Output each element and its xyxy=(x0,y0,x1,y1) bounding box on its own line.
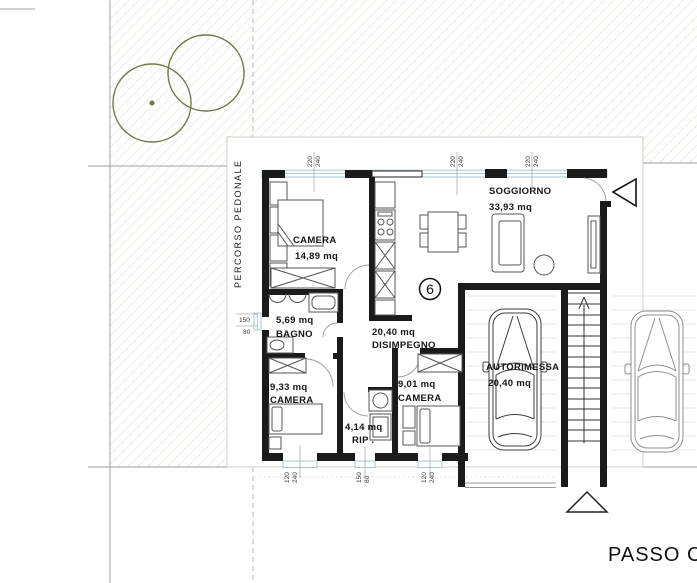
dim-top-2-h: 240 xyxy=(458,156,465,167)
wall-right-outer xyxy=(600,207,607,487)
room-area-camera2: 9,33 mq xyxy=(270,382,307,393)
wall-top-4 xyxy=(567,169,607,178)
dim-top-2-w: 220 xyxy=(450,156,457,167)
wall-bottom-3 xyxy=(375,453,418,461)
dim-top-3-w: 220 xyxy=(525,156,532,167)
hatch-top-strip xyxy=(110,0,643,138)
driveway-label: PASSO C xyxy=(608,544,697,566)
stair-exit-marker xyxy=(567,492,607,512)
wall-entrance-stub xyxy=(600,201,611,207)
wall-camera2-right xyxy=(337,358,343,453)
room-area-soggiorno: 33,93 mq xyxy=(489,202,532,213)
pedestrian-path-label: PERCORSO PEDONALE xyxy=(233,159,243,288)
hatch-top-right xyxy=(643,0,697,163)
kitchen-units xyxy=(375,182,395,315)
unit-badge: 6 xyxy=(420,279,441,300)
room-name-bagno: BAGNO xyxy=(276,329,313,340)
dim-bottom-2-w: 150 xyxy=(356,472,363,483)
wall-bottom-2 xyxy=(317,453,355,461)
sofa-cushion xyxy=(499,221,521,265)
dining-table xyxy=(428,212,458,252)
unit-number: 6 xyxy=(426,281,434,297)
dim-bottom-1-h: 240 xyxy=(292,472,299,483)
garage-door xyxy=(465,483,556,488)
washbasin xyxy=(270,340,284,350)
dim-bottom-2-h: 80 xyxy=(364,475,371,483)
wall-kitchen-flange xyxy=(369,315,412,321)
wall-garage-left xyxy=(458,283,465,487)
room-name-soggiorno: SOGGIORNO xyxy=(489,186,551,197)
bed-pillow xyxy=(420,409,430,443)
dim-left-w: 150 xyxy=(239,317,250,324)
room-area-rip: 4,14 mq xyxy=(345,422,382,433)
kitchen-counter xyxy=(375,300,395,315)
hatch-left-strip xyxy=(110,138,227,467)
floor-plan-svg: 6 CAMERA 14,89 mq 5,69 mq BAGNO 20,40 mq… xyxy=(0,0,697,583)
room-name-disimpegno: DISIMPEGNO xyxy=(372,340,436,351)
wall-stair-left xyxy=(561,283,568,487)
room-area-camera1: 14,89 mq xyxy=(295,251,338,262)
wall-beam-open-top xyxy=(372,171,422,177)
bed-pillow xyxy=(272,407,282,431)
kitchen-counter xyxy=(375,182,395,208)
wall-kitchen xyxy=(369,177,375,318)
room-name-camera1: CAMERA xyxy=(293,235,337,246)
wall-top-3 xyxy=(485,169,507,178)
dim-top-3-h: 240 xyxy=(533,156,540,167)
wall-top-2 xyxy=(345,170,372,178)
room-name-camera3: CAMERA xyxy=(398,393,442,404)
wall-soggiorno-garage xyxy=(465,283,607,290)
shower-tub-inner xyxy=(312,296,335,309)
room-name-autorimessa: AUTORIMESSA xyxy=(486,362,559,373)
wall-left-upper xyxy=(262,170,269,317)
room-area-camera3: 9,01 mq xyxy=(398,379,435,390)
nightstand xyxy=(403,406,415,428)
room-name-camera2: CAMERA xyxy=(270,395,314,406)
dim-left-h: 80 xyxy=(243,329,251,336)
floor-plan-page: 6 CAMERA 14,89 mq 5,69 mq BAGNO 20,40 mq… xyxy=(0,0,697,583)
nightstand xyxy=(269,437,281,449)
dim-bottom-1-w: 120 xyxy=(284,472,291,483)
room-area-disimpegno: 20,40 mq xyxy=(372,327,415,338)
car-neighbor-garage xyxy=(625,311,689,452)
nightstand xyxy=(403,431,415,445)
room-area-autorimessa: 20,40 mq xyxy=(488,378,531,389)
tree-trunk-dot xyxy=(150,101,155,106)
room-name-rip: RIP . xyxy=(352,435,374,446)
wall-bottom-1 xyxy=(262,453,283,461)
tv-cabinet xyxy=(588,216,600,273)
dim-bottom-3-w: 120 xyxy=(421,472,428,483)
dim-top-1-h: 240 xyxy=(315,156,322,167)
dim-top-1-w: 220 xyxy=(307,156,314,167)
room-area-bagno: 5,69 mq xyxy=(276,315,313,326)
dim-bottom-3-h: 240 xyxy=(429,472,436,483)
